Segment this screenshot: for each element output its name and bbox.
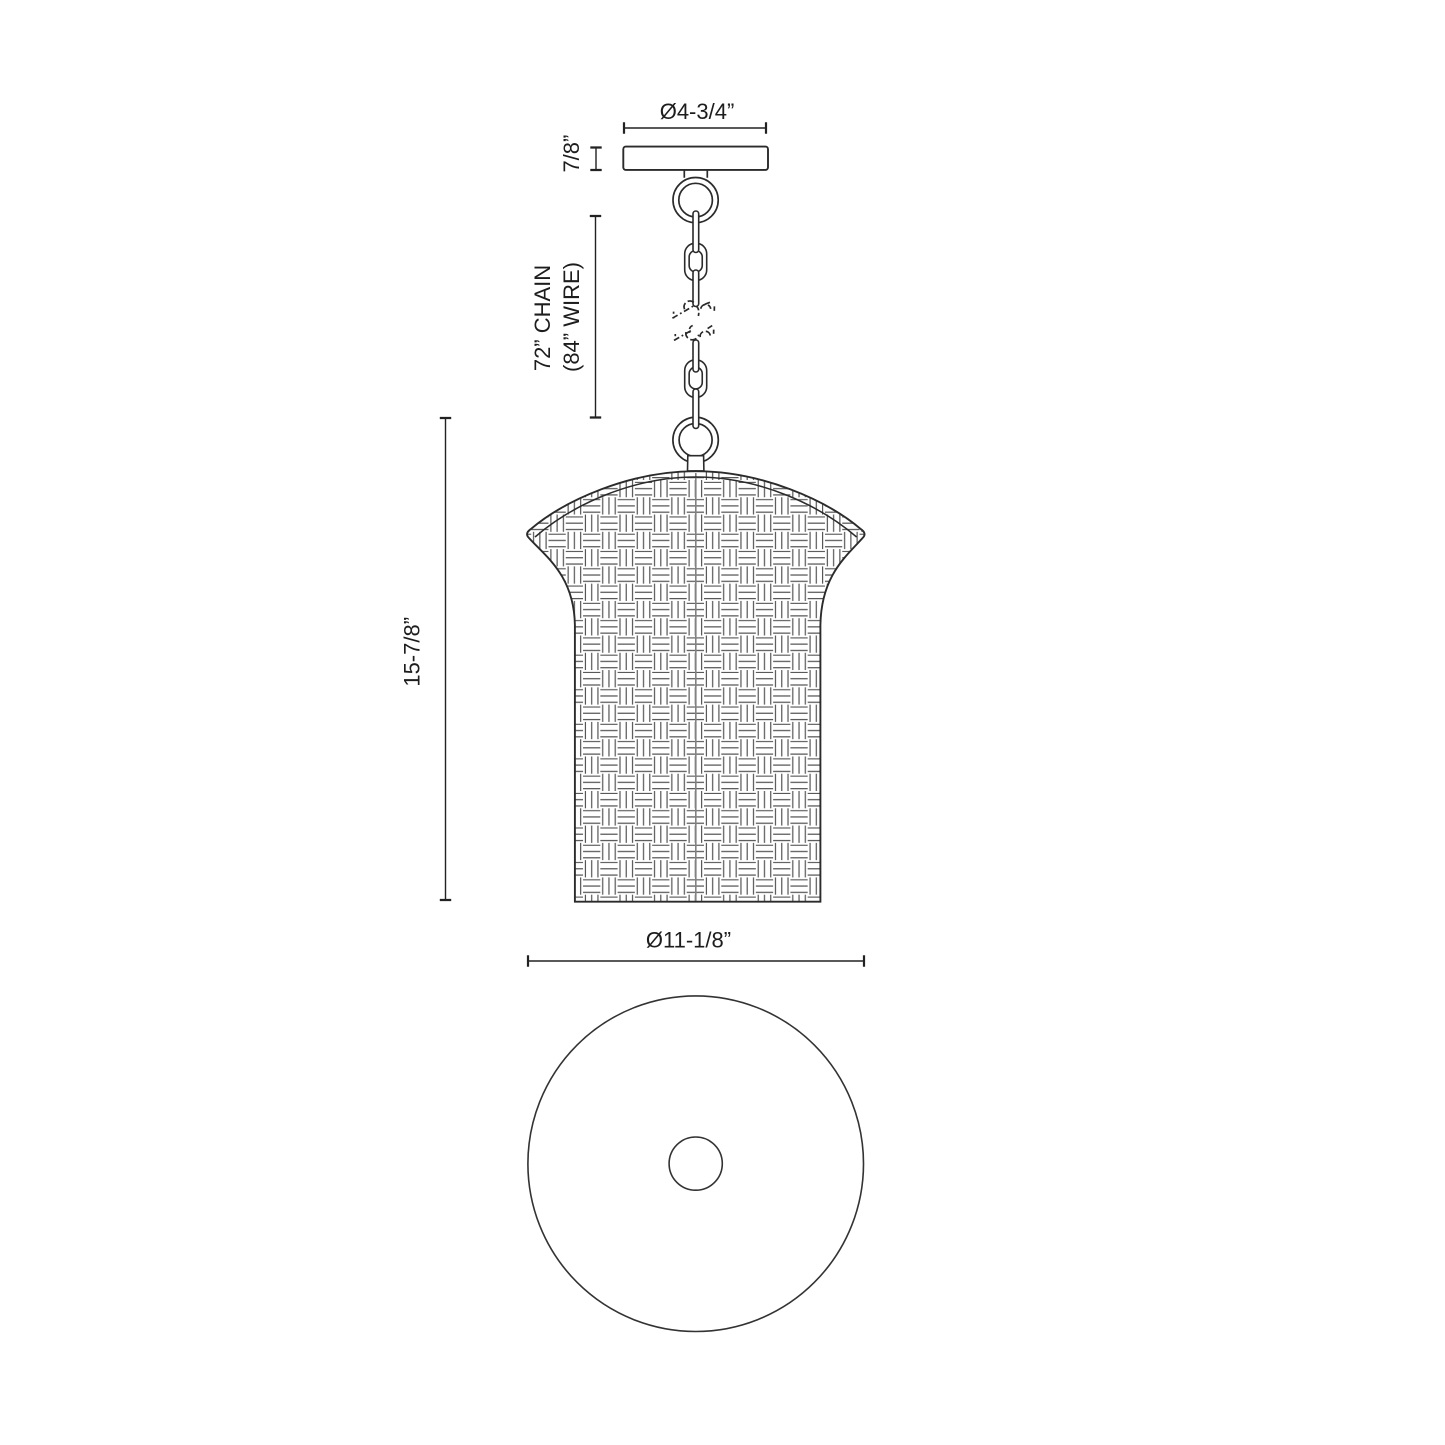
svg-text:7/8”: 7/8” <box>559 135 584 173</box>
svg-text:Ø11-1/8”: Ø11-1/8” <box>646 927 731 952</box>
svg-text:(84” WIRE): (84” WIRE) <box>559 262 584 372</box>
svg-text:15-7/8”: 15-7/8” <box>400 617 425 687</box>
svg-text:Ø4-3/4”: Ø4-3/4” <box>660 99 735 124</box>
svg-text:72” CHAIN: 72” CHAIN <box>530 265 555 371</box>
